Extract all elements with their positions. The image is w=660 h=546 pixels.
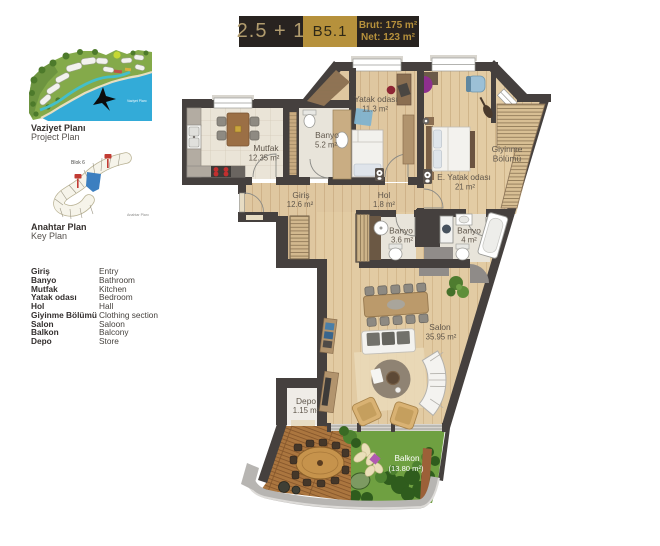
svg-text:Yatak odası: Yatak odası — [354, 94, 398, 104]
svg-text:E. Yatak odası: E. Yatak odası — [437, 172, 491, 182]
svg-text:Banyo: Banyo — [315, 130, 339, 140]
svg-text:(13.80 m²): (13.80 m²) — [388, 464, 423, 473]
svg-text:Mutfak: Mutfak — [253, 143, 279, 153]
svg-text:Salon: Salon — [429, 322, 451, 332]
svg-text:5.2 m²: 5.2 m² — [315, 141, 337, 150]
svg-text:4 m²: 4 m² — [461, 236, 477, 245]
svg-text:Banyo: Banyo — [457, 226, 481, 236]
svg-text:35.95 m²: 35.95 m² — [426, 333, 457, 342]
svg-text:11.3 m²: 11.3 m² — [362, 105, 388, 114]
svg-text:Balkon: Balkon — [394, 454, 419, 463]
svg-text:12.35 m²: 12.35 m² — [249, 154, 280, 163]
svg-text:3.6 m²: 3.6 m² — [391, 236, 413, 245]
svg-text:12.6 m²: 12.6 m² — [287, 200, 314, 209]
svg-text:Blok 6: Blok 6 — [71, 160, 85, 166]
svg-text:Banyo: Banyo — [389, 226, 413, 236]
svg-text:Giriş: Giriş — [292, 190, 309, 200]
svg-text:1.8 m²: 1.8 m² — [373, 200, 395, 209]
svg-text:Bölümü: Bölümü — [493, 154, 522, 164]
svg-text:1.15 m²: 1.15 m² — [293, 406, 320, 415]
svg-text:Anahtar Planı: Anahtar Planı — [127, 213, 149, 217]
svg-text:Vaziyet Planı: Vaziyet Planı — [127, 99, 147, 103]
svg-text:Giyinme: Giyinme — [492, 144, 523, 154]
svg-text:Hol: Hol — [378, 190, 391, 200]
svg-text:Depo: Depo — [296, 396, 316, 406]
svg-text:21 m²: 21 m² — [455, 183, 475, 192]
